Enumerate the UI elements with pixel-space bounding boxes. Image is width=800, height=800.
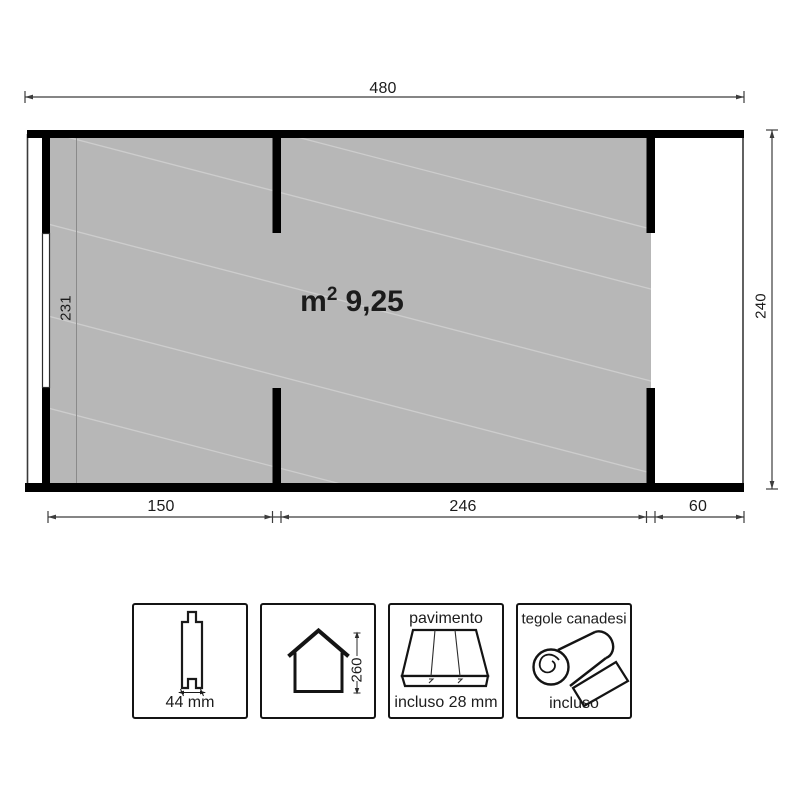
area-label: m29,25 — [300, 285, 404, 319]
dim-label-seg-left: 150 — [147, 498, 174, 516]
legend-box-plank: 44 mm — [132, 603, 248, 719]
legend-box-house: 260 — [260, 603, 376, 719]
right-partition-upper — [647, 138, 656, 233]
floor-included-label: incluso 28 mm — [394, 694, 497, 712]
shingles-included-label: incluso — [549, 695, 599, 713]
floor-title-label: pavimento — [409, 610, 483, 628]
front-wall — [25, 483, 744, 492]
mid-partition-upper — [273, 138, 282, 233]
area-unit: m — [300, 285, 327, 318]
mid-partition-lower — [273, 388, 282, 483]
left-wall-lower — [42, 388, 50, 483]
legend-box-floor: pavimento incluso 28 mm — [388, 603, 504, 719]
dim-label-seg-middle: 246 — [449, 498, 476, 516]
technical-drawing-sheet: 480 240 231 150 246 60 m29,25 44 mm — [0, 0, 800, 800]
area-exponent: 2 — [327, 284, 338, 305]
plank-width-label: 44 mm — [166, 694, 215, 712]
legend-box-shingles: tegole canadesi incluso — [516, 603, 632, 719]
back-wall — [27, 130, 744, 138]
area-value: 9,25 — [345, 285, 403, 318]
door-leaf — [43, 234, 50, 388]
dim-label-interior-height: 231 — [58, 295, 75, 321]
left-wall-upper — [42, 138, 50, 233]
right-partition-lower — [647, 388, 656, 483]
shingles-title-label: tegole canadesi — [521, 611, 626, 628]
house-height-label: 260 — [349, 657, 366, 682]
dim-label-seg-right: 60 — [689, 498, 707, 516]
dim-label-height-total: 240 — [753, 293, 770, 319]
dim-label-width-total: 480 — [369, 80, 396, 98]
